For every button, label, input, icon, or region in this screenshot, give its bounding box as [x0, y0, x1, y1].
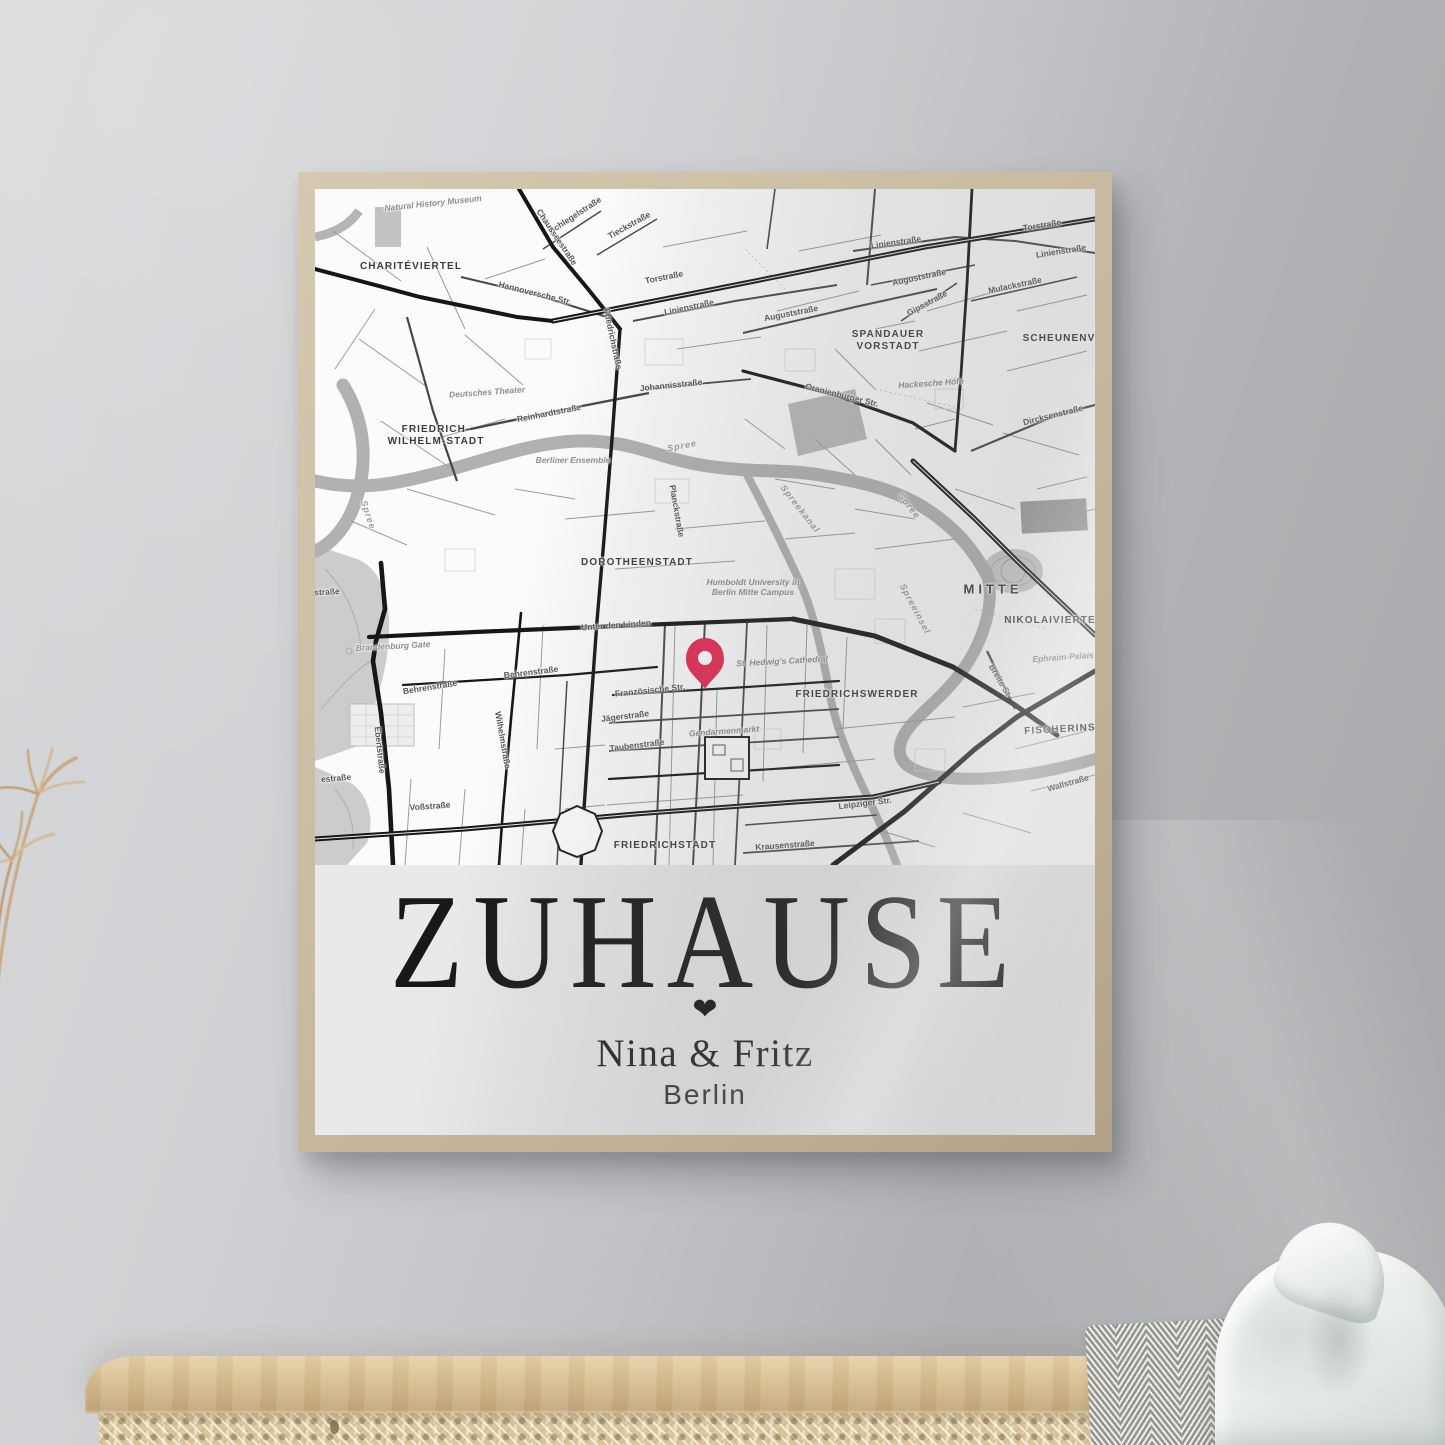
map-label: Spreeinsel: [897, 582, 932, 636]
map-label: Behrenstraße: [503, 664, 559, 681]
map-label: St. Hedwig's Cathedral: [736, 654, 828, 669]
map-label: Ephraim-Palais: [1032, 650, 1094, 664]
map-label: Linienstraße: [663, 297, 715, 317]
map-label: Mulackstraße: [987, 274, 1042, 295]
map-label: Jägerstraße: [600, 708, 649, 724]
map-label: Dircksenstraße: [1022, 403, 1084, 428]
map-labels-layer: Natural History MuseumCHARITÉVIERTELSchl…: [315, 189, 1095, 865]
map-label: Gipsstraße: [905, 288, 949, 318]
map-label: Wallstraße: [1046, 772, 1090, 793]
map-label: Leipziger Str.: [838, 795, 892, 811]
map-label: NIKOLAIVIERTE: [1004, 615, 1095, 627]
map-label: Unter den Linden: [581, 618, 651, 633]
map-label: FISCHERINS: [1024, 722, 1095, 738]
map-label: Oranienburger Str.: [804, 381, 879, 409]
map-label: Deutsches Theater: [449, 384, 526, 399]
city-map: Natural History MuseumCHARITÉVIERTELSchl…: [315, 189, 1095, 865]
map-label: MITTE: [964, 581, 1023, 596]
map-label: Brandenburg Gate: [355, 639, 430, 653]
map-label: Voßstraße: [409, 800, 451, 813]
poster-frame: Natural History MuseumCHARITÉVIERTELSchl…: [298, 172, 1112, 1152]
map-label: Planckstraße: [667, 484, 686, 538]
map-label: Torstraße: [1022, 217, 1062, 233]
map-label: FRIEDRICHSTADT: [614, 840, 716, 852]
room-scene: Natural History MuseumCHARITÉVIERTELSchl…: [0, 0, 1445, 1445]
map-label: Wilhelmstraße: [493, 711, 513, 770]
map-label: Spree: [666, 438, 697, 454]
map-label: Friedrichstraße: [602, 308, 625, 371]
poster-text-block: ZUHAUSE ❤ Nina & Fritz Berlin: [315, 865, 1095, 1135]
map-label: SCHEUNENV: [1023, 333, 1095, 345]
map-label: Natural History Museum: [384, 193, 482, 213]
map-label: Auguststraße: [891, 266, 947, 287]
map-label: Spree: [358, 499, 377, 531]
poster-names: Nina & Fritz: [315, 1033, 1095, 1076]
map-label: Spree: [896, 491, 923, 521]
linen-cloth: [1215, 1224, 1445, 1445]
map-label: enstraße: [315, 586, 340, 598]
map-label: Berliner Ensemble: [536, 455, 611, 465]
map-label: Linienstraße: [870, 234, 921, 251]
map-label: Hannoversche Str.: [498, 279, 573, 307]
map-label: Humboldt University in Berlin Mitte Camp…: [706, 577, 799, 597]
map-label: Taubenstraße: [609, 737, 665, 754]
map-label: FRIEDRICH- WILHELM-STADT: [388, 424, 485, 448]
map-label: Linienstraße: [1035, 242, 1086, 260]
map-label: Französische Str.: [614, 681, 685, 698]
map-label: Behrenstraße: [402, 678, 458, 696]
map-label: Reinhardtstraße: [516, 402, 582, 424]
map-label: SPANDAUER VORSTADT: [852, 329, 925, 353]
map-label: Tieckstraße: [606, 209, 652, 241]
poster-city: Berlin: [315, 1079, 1095, 1111]
map-label: Gendarmenmarkt: [689, 724, 760, 739]
map-label: Krausenstraße: [755, 838, 815, 852]
map-label: Breite St: [987, 662, 1013, 697]
map-label: Hackesche Höfe: [898, 376, 964, 391]
map-label: Auguststraße: [763, 303, 819, 323]
map-label: CHARITÉVIERTEL: [360, 261, 462, 273]
map-poster: Natural History MuseumCHARITÉVIERTELSchl…: [315, 189, 1095, 1135]
map-label: Johannisstraße: [639, 377, 703, 394]
pampas-grass: [0, 742, 104, 992]
map-label: Torstraße: [644, 268, 684, 285]
map-label: estraße: [320, 772, 351, 785]
map-label: Spreekanal: [778, 483, 822, 535]
cloth-crease: [1285, 1284, 1405, 1424]
map-label: FRIEDRICHSWERDER: [795, 689, 918, 701]
map-label: DOROTHEENSTADT: [581, 557, 693, 569]
poster-title: ZUHAUSE: [315, 865, 1095, 1010]
cane-knob: [330, 1420, 339, 1434]
map-label: Ebertstraße: [373, 726, 388, 774]
